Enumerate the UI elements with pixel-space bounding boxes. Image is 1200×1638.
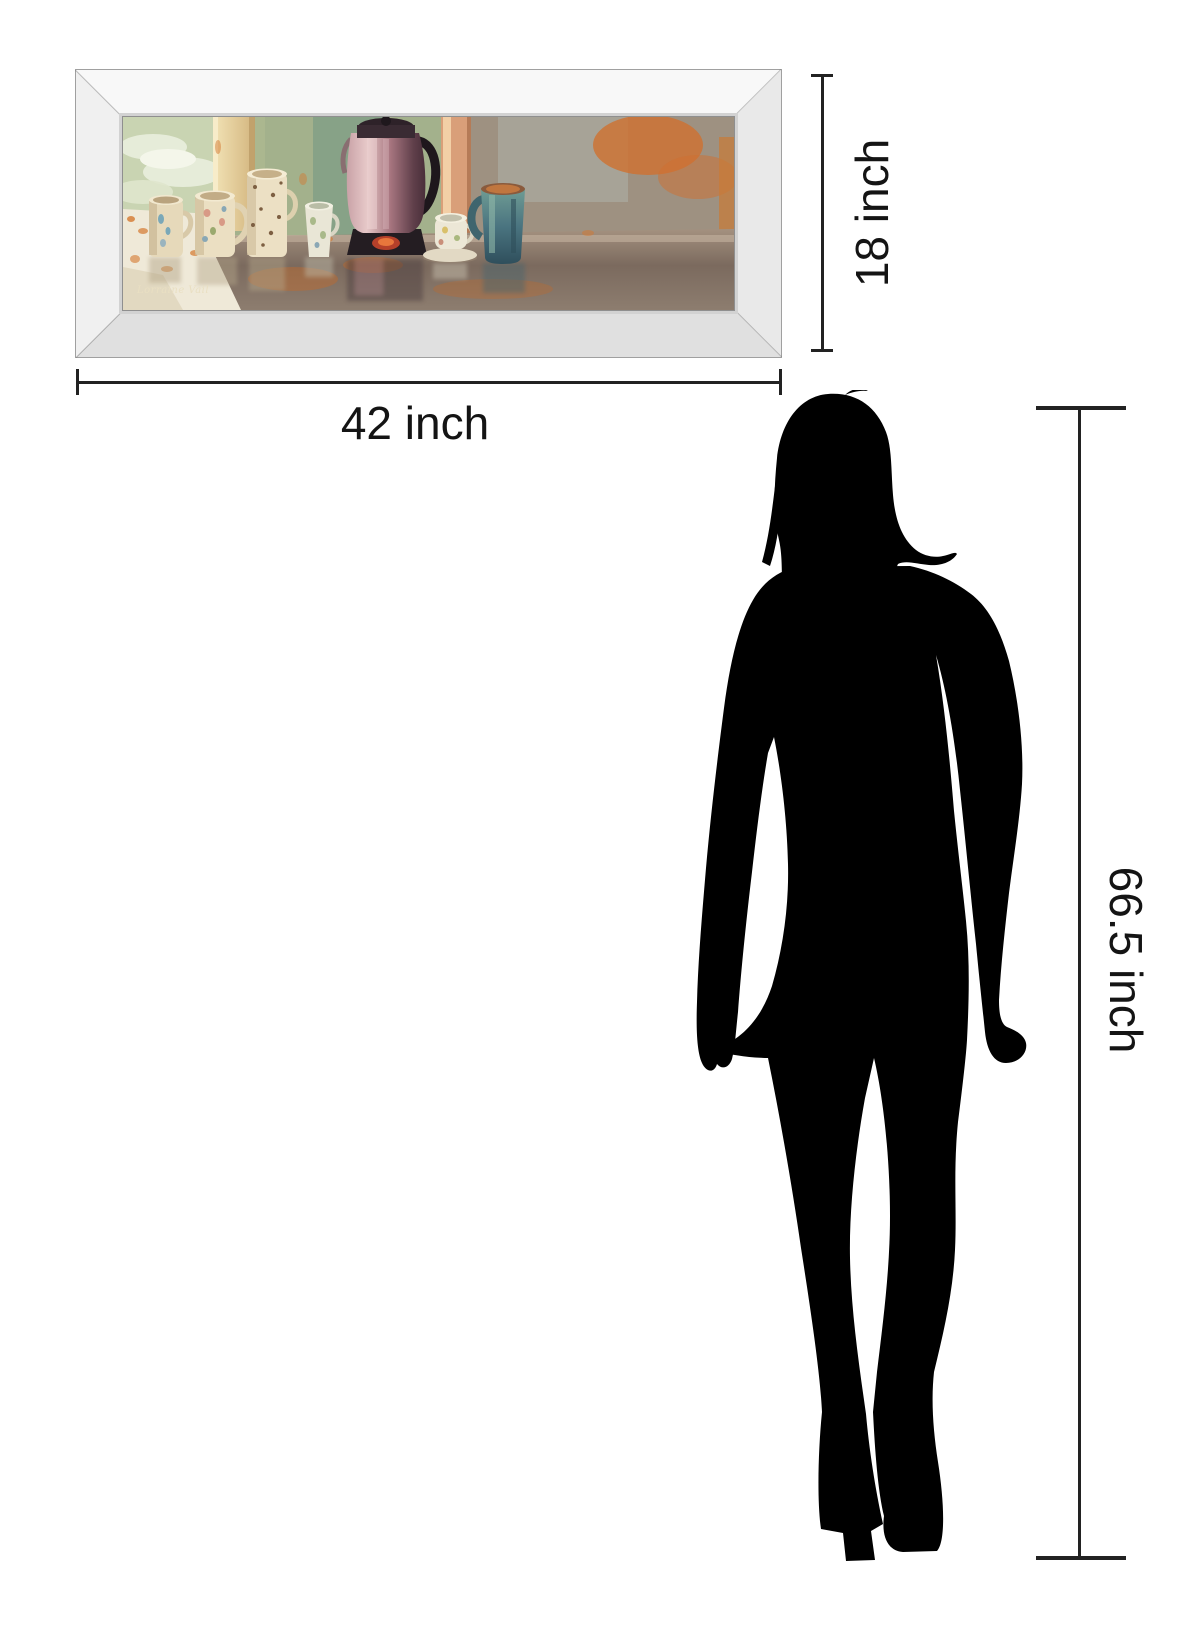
person-height-dimension-line [1078,408,1081,1558]
width-dimension-line [76,381,782,384]
height-dimension-tick-bottom [811,349,833,352]
frame-miter-seam [76,310,124,358]
width-dimension-tick-left [76,369,79,395]
silhouette-hair [775,394,957,595]
person-height-tick-bottom [1036,1556,1126,1560]
frame-miter-seam [734,309,782,357]
framed-artwork-mirror-frame: Lorraine Vail [76,70,781,357]
person-height-dimension-label: 66.5 inch [1103,860,1149,1060]
height-dimension-label: 18 inch [849,138,895,288]
silhouette-body [697,566,1027,1561]
height-dimension-line [821,75,824,351]
product-size-diagram: Lorraine Vail 42 inch 18 inch 66.5 inch [0,0,1200,1638]
frame-miter-seam [75,70,123,118]
height-dimension-tick-top [811,74,833,77]
artist-signature: Lorraine Vail [136,285,209,296]
painting-canvas: Lorraine Vail [123,117,734,310]
woman-silhouette [690,390,1036,1568]
person-height-tick-top [1036,406,1126,410]
artwork-print-coffee-still-life: Lorraine Vail [123,117,734,310]
silhouette-hair-tuft [845,390,868,395]
silhouette-hair-strand [762,470,783,566]
width-dimension-label: 42 inch [265,400,565,446]
frame-miter-seam [733,69,781,117]
